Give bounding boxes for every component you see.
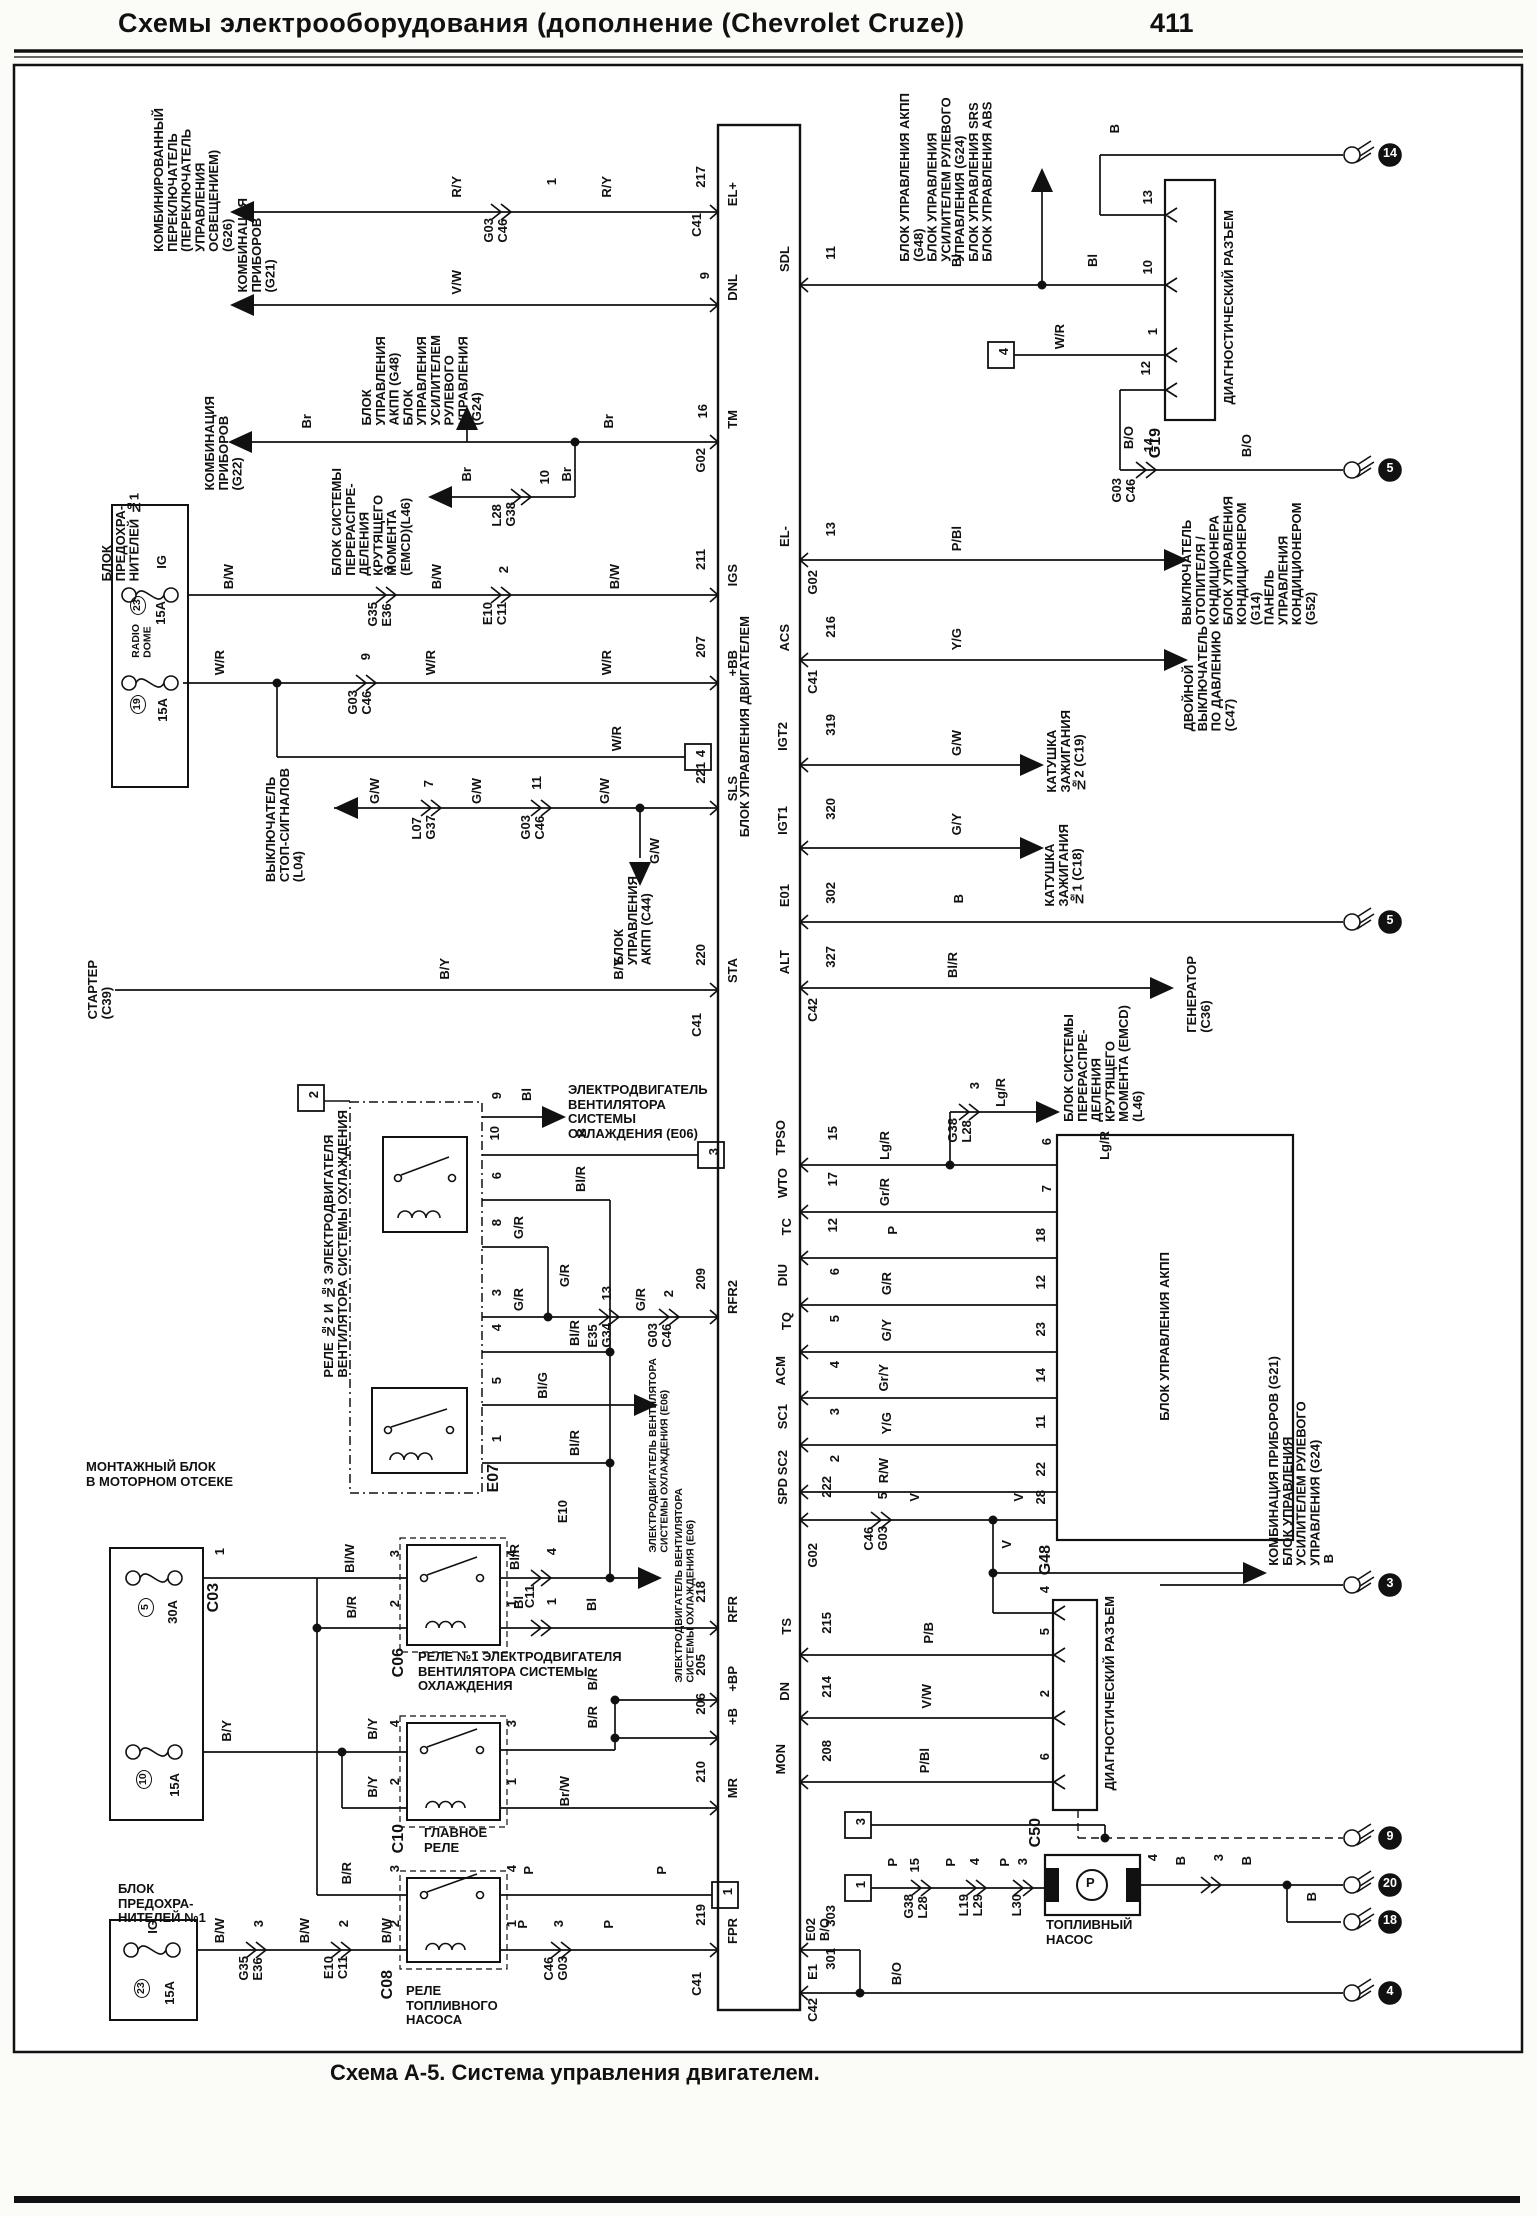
diagram-label: W/R [1053,324,1067,349]
diagram-label: 211 [694,549,708,570]
diagram-label: +BB [726,650,740,676]
diagram-label: 11 [530,776,544,790]
diagram-label: 15A [156,698,170,722]
diagram-label: Br [300,414,314,428]
diagram-label: 208 [820,1740,834,1762]
diagram-label: 3 [490,1289,504,1296]
diagram-label: B/O [890,1962,904,1985]
diagram-label: G38 L28 [902,1894,930,1919]
diagram-label: Lg/R [994,1078,1008,1107]
diagram-label: Bl [512,1596,526,1609]
diagram-label: V [1000,1540,1014,1549]
diagram-label: B [1305,1892,1319,1901]
diagram-label: 1 [720,1888,735,1895]
diagram-label: 14 [1142,438,1156,452]
diagram-label: 3 [853,1818,868,1825]
diagram-label: V [1012,1493,1026,1502]
diagram-label: 7 [1040,1185,1054,1192]
scanned-manual-page: Схемы электрооборудования (дополнение (C… [0,0,1537,2216]
diagram-label: C42 [806,1998,820,2022]
diagram-label: G/W [648,838,662,864]
diagram-label: 8 [490,1219,504,1226]
diagram-label: 4 [828,1361,842,1368]
diagram-label: E1 [806,1964,820,1980]
label-instrument-cluster-g22: КОМБИНАЦИЯ ПРИБОРОВ (G22) [203,396,244,491]
diagram-label: 219 [694,1904,708,1926]
page-bottom-bar [14,2196,1520,2203]
diagram-label: 218 [694,1581,708,1603]
diagram-label: 2 [388,1778,402,1785]
diagram-label: 1 [1146,328,1160,335]
diagram-label: Bl [1086,254,1100,267]
diagram-label: 2 [828,1455,842,1462]
diagram-label: 6 [1038,1753,1052,1760]
diagram-label: B/R [340,1862,354,1884]
diagram-label: P [516,1920,530,1929]
diagram-caption: Схема А-5. Система управления двигателем… [330,2060,820,2086]
diagram-label: 4 [1378,1984,1402,1998]
diagram-label: TPSO [774,1120,788,1155]
diagram-label: 15A [163,1981,177,2005]
diagram-label: W/R [610,726,624,751]
diagram-label: G/R [634,1288,648,1311]
diagram-label: 4 [693,750,708,757]
diagram-label: 20 [1378,1876,1402,1890]
diagram-label: B [952,894,966,903]
diagram-border [14,65,1522,2052]
diagram-label: 9 [359,653,373,660]
diagram-label: E01 [778,884,792,907]
diagram-label: G48 [1038,1545,1054,1575]
label-tcm-box: БЛОК УПРАВЛЕНИЯ АКПП [1158,1252,1172,1421]
diagram-label: 3 [706,1148,721,1155]
diagram-label: 220 [694,944,708,966]
diagram-label: 1 [213,1548,227,1555]
diagram-label: Y/G [880,1412,894,1434]
diagram-label: STA [726,958,740,983]
diagram-label: Bl/R [574,1166,588,1192]
diagram-label: 1 [505,1778,519,1785]
diagram-label: R/Y [450,176,464,198]
diagram-label: B [1108,124,1122,133]
label-sdl-modules: БЛОК УПРАВЛЕНИЯ АКПП (G48) БЛОК УПРАВЛЕН… [898,93,994,262]
diagram-label: 215 [820,1612,834,1634]
diagram-label: TQ [780,1312,794,1330]
diagram-label: G/W [598,778,612,804]
diagram-label: V [908,1493,922,1502]
diagram-label: 301 [824,1948,838,1970]
label-stoplamp-switch-l04: ВЫКЛЮЧАТЕЛЬ СТОП-СИГНАЛОВ (L04) [264,768,305,882]
diagram-label: C42 [806,998,820,1022]
diagram-label: G03 C46 [646,1323,674,1348]
diagram-label: E07 [486,1464,502,1492]
diagram-label: P/Bl [918,1748,932,1773]
diagram-label: B [575,1128,589,1137]
diagram-label: 11 [1034,1415,1048,1429]
label-fan-motor-e06-a: ЭЛЕКТРОДВИГАТЕЛЬ ВЕНТИЛЯТОРА СИСТЕМЫ ОХЛ… [568,1083,708,1141]
label-main-relay: ГЛАВНОЕ РЕЛЕ [424,1826,487,1855]
diagram-label: 3 [552,1920,566,1927]
diagram-label: 19 [130,695,146,714]
diagram-label: 2 [337,1920,351,1927]
diagram-label: 9 [698,272,712,279]
diagram-label: 3 [382,566,396,573]
diagram-label: 9 [1378,1829,1402,1843]
diagram-label: IG [146,1920,160,1934]
diagram-label: 18 [1034,1228,1048,1242]
diagram-label: G/R [512,1288,526,1311]
diagram-label: C41 [806,670,820,694]
diagram-label: C03 [206,1583,222,1612]
diagram-label: P [998,1858,1012,1867]
diagram-label: Bl/R [946,952,960,978]
schematic-linework [0,0,1537,2216]
diagram-label: 209 [694,1268,708,1290]
diagram-label: P/B [922,1622,936,1644]
diagram-label: 5 [490,1377,504,1384]
diagram-label: 3 [1378,1576,1402,1590]
diagram-label: 207 [694,636,708,658]
diagram-label: 3 [252,1920,266,1927]
diagram-label: ACS [778,624,792,651]
label-ecm: БЛОК УПРАВЛЕНИЯ ДВИГАТЕЛЕМ [738,616,752,837]
diagram-label: R/W [877,1458,891,1483]
diagram-label: TM [726,410,740,429]
diagram-label: Br [560,467,574,481]
diagram-label: W/R [424,650,438,675]
diagram-label: 1 [545,1598,559,1605]
diagram-label: B/W [608,564,622,589]
diagram-label: B/W [222,564,236,589]
diagram-label: E10 [556,1500,570,1523]
diagram-label: 205 [694,1654,708,1676]
diagram-label: IG [155,555,169,569]
label-cluster-eps-spd: КОМБИНАЦИЯ ПРИБОРОВ (G21) БЛОК УПРАВЛЕНИ… [1267,1356,1322,1566]
diagram-label: G/W [470,778,484,804]
diagram-label: Bl/R [568,1430,582,1456]
diagram-label: ALT [778,950,792,974]
diagram-label: Bl [950,254,964,267]
diagram-label: RADIO DOME [131,624,154,658]
diagram-label: IGT2 [776,722,790,751]
diagram-label: SC2 [776,1450,790,1475]
diagram-label: 4 [388,1720,402,1727]
diagram-label: G35 E36 [366,602,394,627]
diagram-label: L19 L29 [957,1894,985,1916]
diagram-label: 6 [490,1172,504,1179]
diagram-label: V/W [450,270,464,295]
diagram-label: E10 C11 [322,1956,350,1979]
diagram-label: 22 [1034,1462,1048,1476]
diagram-label: 15 [826,1126,840,1140]
diagram-label: 3 [828,1408,842,1415]
diagram-label: 1 [545,178,559,185]
diagram-label: DNL [726,274,740,301]
diagram-label: Br/W [558,1776,572,1806]
diagram-label: 15A [168,1773,182,1797]
diagram-label: 4 [1146,1854,1160,1861]
diagram-label: B/R [586,1706,600,1728]
diagram-label: 5 [1378,913,1402,927]
diagram-label: 2 [497,566,511,573]
diagram-label: 6 [828,1268,842,1275]
diagram-label: 15 [908,1858,922,1872]
diagram-label: 4 [1038,1586,1052,1593]
diagram-label: 13 [1141,190,1155,204]
diagram-label: B/W [430,564,444,589]
diagram-label: G/W [368,778,382,804]
diagram-label: C46 G03 [862,1526,890,1551]
diagram-label: B/Y [612,958,626,980]
diagram-label: 2 [388,1600,402,1607]
diagram-label: 210 [694,1761,708,1783]
diagram-label: P/Bl [950,526,964,551]
diagram-label: 12 [1034,1275,1048,1289]
diagram-label: 23 [130,596,146,615]
label-fuel-pump: ТОПЛИВНЫЙ НАСОС [1046,1918,1132,1947]
label-dlc-g19: ДИАГНОСТИЧЕСКИЙ РАЗЪЕМ [1222,210,1236,405]
diagram-label: G35 E36 [237,1956,265,1981]
diagram-label: G/Y [880,1319,894,1341]
diagram-label: 320 [824,798,838,820]
diagram-label: C41 [690,213,704,237]
label-starter-c39: СТАРТЕР (C39) [86,960,114,1019]
diagram-label: Bl/R [568,1320,582,1346]
diagram-label: B/O [1122,426,1136,449]
label-fan-motor-e06-b: ЭЛЕКТРОДВИГАТЕЛЬ ВЕНТИЛЯТОРА СИСТЕМЫ ОХЛ… [648,1358,671,1553]
diagram-label: TC [780,1218,794,1235]
diagram-label: 2 [662,1290,676,1297]
label-dual-pressure-switch-c47: ДВОЙНОЙ ВЫКЛЮЧАТЕЛЬ ПО ДАВЛЕНИЮ (C47) [1182,626,1237,731]
diagram-label: 206 [694,1693,708,1715]
diagram-label: 5 [1038,1628,1052,1635]
diagram-label: 10 [1141,260,1155,274]
diagram-label: P [522,1866,536,1875]
diagram-label: Y/G [950,628,964,650]
diagram-label: L30 [1010,1894,1024,1916]
diagram-label: Bl [585,1598,599,1611]
diagram-label: 216 [824,616,838,638]
diagram-label: B/Y [366,1718,380,1740]
diagram-label: G03 C46 [482,218,510,243]
diagram-label: 5 [828,1315,842,1322]
label-engine-bay-block: МОНТАЖНЫЙ БЛОК В МОТОРНОМ ОТСЕКЕ [86,1460,233,1489]
diagram-label: 11 [824,246,838,260]
diagram-label: 30A [166,1600,180,1624]
diagram-label: 3 [1016,1858,1030,1865]
label-combo-switch-g26: КОМБИНИРОВАННЫЙ ПЕРЕКЛЮЧАТЕЛЬ (ПЕРЕКЛЮЧА… [152,108,235,252]
diagram-label: 9 [490,1092,504,1099]
diagram-label: C41 [690,1013,704,1037]
diagram-label: B [1240,1856,1254,1865]
label-fuel-pump-relay: РЕЛЕ ТОПЛИВНОГО НАСОСА [406,1984,498,2028]
diagram-label: 214 [820,1676,834,1698]
diagram-label: B [1174,1856,1188,1865]
diagram-label: 302 [824,882,838,904]
diagram-label: 5 [138,1598,154,1617]
diagram-label: C08 [380,1970,396,1999]
diagram-label: P [886,1858,900,1867]
diagram-label: 3 [1212,1854,1226,1861]
diagram-label: L07 G37 [410,815,438,840]
diagram-label: 221 [694,762,708,784]
diagram-label: FPR [726,1918,740,1944]
diagram-label: 319 [824,714,838,736]
diagram-label: W/R [600,650,614,675]
diagram-label: G03 C46 [519,815,547,840]
diagram-label: 23 [1034,1322,1048,1336]
diagram-label: C41 [690,1972,704,1996]
diagram-label: B/O [1240,434,1254,457]
label-emcd-l46-2: БЛОК СИСТЕМЫ ПЕРЕРАСПРЕ- ДЕЛЕНИЯ КРУТЯЩЕ… [1062,1005,1145,1122]
diagram-label: Bl/W [343,1544,357,1573]
diagram-label: ACM [774,1356,788,1386]
diagram-label: P [655,1866,669,1875]
diagram-label: +BP [726,1666,740,1692]
diagram-label: 13 [600,1286,614,1300]
diagram-label: E10 C11 [481,602,509,625]
diagram-label: 28 [1034,1490,1048,1504]
diagram-label: G02 [806,570,820,595]
diagram-label: 4 [968,1858,982,1865]
diagram-label: Lg/R [1098,1131,1112,1160]
diagram-label: E02 [804,1918,818,1941]
diagram-label: B/Y [366,1776,380,1798]
label-tcm-c44: БЛОК УПРАВЛЕНИЯ АКПП (C44) [612,876,653,965]
diagram-label: 12 [826,1218,840,1232]
diagram-label: Lg/R [878,1131,892,1160]
diagram-label: 3 [505,1720,519,1727]
diagram-label: 3 [388,1550,402,1557]
diagram-label: G02 [806,1543,820,1568]
diagram-label: Br [460,467,474,481]
label-ignition-coil-2: КАТУШКА ЗАЖИГАНИЯ №2 (C19) [1045,710,1086,793]
diagram-label: +B [726,1708,740,1725]
diagram-label: B/W [213,1918,227,1943]
diagram-label: G03 C46 [1110,478,1138,503]
diagram-label: B/R [345,1596,359,1618]
diagram-label: P [602,1920,616,1929]
diagram-label: SC1 [776,1404,790,1429]
diagram-label: P [886,1226,900,1235]
diagram-label: 327 [824,946,838,968]
diagram-label: B/W [380,1918,394,1943]
diagram-label: Gr/Y [877,1364,891,1391]
label-fusebox1-bottom: БЛОК ПРЕДОХРА- НИТЕЛЕЙ №1 [118,1882,206,1926]
diagram-label: R/Y [600,176,614,198]
diagram-label: Bl/G [536,1372,550,1399]
diagram-label: B/W [298,1918,312,1943]
diagram-label: 14 [1034,1368,1048,1382]
diagram-label: DIU [776,1264,790,1286]
diagram-label: W/R [213,650,227,675]
diagram-label: MR [726,1778,740,1798]
diagram-label: 3 [388,1865,402,1872]
diagram-label: 2 [306,1091,321,1098]
diagram-label: G38 L28 [946,1118,974,1143]
diagram-label: P [1086,1876,1095,1891]
diagram-label: G/R [880,1272,894,1295]
diagram-label: EL- [778,526,792,547]
diagram-label: 13 [824,522,838,536]
diagram-label: 7 [422,780,436,787]
diagram-label: Bl [520,1088,534,1101]
diagram-label: C50 [1028,1818,1044,1847]
diagram-label: 5 [1378,461,1402,475]
diagram-label: G/R [558,1264,572,1287]
diagram-label: B/R [586,1668,600,1690]
diagram-label: 3 [968,1082,982,1089]
diagram-label: B/Y [220,1720,234,1742]
diagram-label: B/O [818,1918,832,1941]
diagram-label: DN [778,1682,792,1701]
label-generator-c36: ГЕНЕРАТОР (C36) [1185,956,1213,1033]
diagram-label: 10 [538,470,552,484]
label-tcm-eps-g48-g24: БЛОК УПРАВЛЕНИЯ АКПП (G48) БЛОК УПРАВЛЕН… [360,335,484,426]
diagram-label: C46 G03 [542,1956,570,1981]
diagram-label: 14 [1378,146,1402,160]
diagram-label: Bl/R [508,1544,522,1570]
diagram-label: 5 [876,1492,890,1499]
diagram-label: 4 [505,1865,519,1872]
diagram-label: 4 [490,1324,504,1331]
diagram-label: IGS [726,564,740,586]
diagram-label: IGT1 [776,806,790,835]
label-hvac-g14-g52: ВЫКЛЮЧАТЕЛЬ ОТОПИТЕЛЯ / КОНДИЦИОНЕРА БЛО… [1180,496,1318,625]
diagram-label: 1 [853,1881,868,1888]
diagram-label: SDL [778,246,792,272]
diagram-label: MON [774,1744,788,1774]
diagram-label: 10 [136,1770,152,1789]
diagram-label: Gr/R [878,1178,892,1206]
diagram-label: P [944,1858,958,1867]
diagram-label: 16 [696,404,710,418]
diagram-label: 17 [826,1172,840,1186]
diagram-label: 4 [996,348,1011,355]
diagram-label: 23 [134,1979,150,1998]
diagram-label: G03 C46 [346,690,374,715]
diagram-label: 12 [1139,361,1153,375]
diagram-label: 217 [694,166,708,188]
diagram-label: RFR2 [726,1280,740,1314]
diagram-label: 2 [1038,1690,1052,1697]
diagram-label: L28 G38 [490,502,518,527]
diagram-label: G/Y [950,813,964,835]
diagram-label: C10 [391,1824,407,1853]
diagram-label: C06 [391,1648,407,1677]
diagram-label: 15A [154,601,168,625]
diagram-label: G/W [950,730,964,756]
label-dlc-c50: ДИАГНОСТИЧЕСКИЙ РАЗЪЕМ [1103,1596,1117,1791]
label-fan-relays-2-3: РЕЛЕ №2 И №3 ЭЛЕКТРОДВИГАТЕЛЯ ВЕНТИЛЯТОР… [322,1110,350,1378]
diagram-label: G02 [694,448,708,473]
diagram-label: SLS [726,776,740,801]
diagram-label: 18 [1378,1913,1402,1927]
diagram-label: B [1322,1554,1336,1563]
diagram-label: WTO [776,1168,790,1198]
label-emcd-l46: БЛОК СИСТЕМЫ ПЕРЕРАСПРЕ- ДЕЛЕНИЯ КРУТЯЩЕ… [330,468,413,576]
diagram-label: 222 [820,1476,834,1498]
diagram-label: B/Y [438,958,452,980]
diagram-label: 10 [488,1126,502,1140]
diagram-label: G/R [512,1216,526,1239]
diagram-label: 4 [545,1548,559,1555]
label-fusebox1-top: БЛОК ПРЕДОХРА- НИТЕЛЕЙ №1 [100,493,141,581]
diagram-label: EL+ [726,182,740,206]
diagram-label: E35 G34 [586,1323,614,1348]
diagram-label: RFR [726,1596,740,1623]
diagram-label: 6 [1040,1138,1054,1145]
